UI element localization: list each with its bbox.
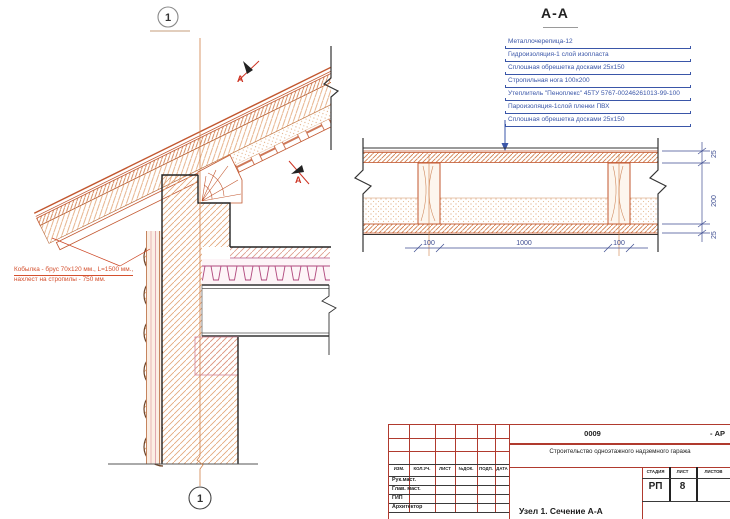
stage-label: СТАДИЯ	[642, 469, 669, 474]
floor-slab	[202, 247, 330, 285]
sheets-label: ЛИСТОВ	[696, 469, 730, 474]
row-rukmast: Рук.маст.	[392, 477, 416, 483]
doc-number: 0009	[509, 429, 676, 438]
col-list: ЛИСТ	[435, 466, 455, 471]
siding-strips	[146, 231, 162, 464]
dim-bottom: 25	[711, 231, 718, 239]
row-gip: ГИП	[392, 495, 403, 501]
section-title: А-А	[541, 5, 569, 21]
callout-item: Металлочерепица-12	[505, 36, 691, 49]
bearing-pad	[195, 337, 238, 375]
section-letter: А	[295, 175, 302, 185]
section-a-a-drawing: 25 200 25 100 1000 100	[350, 118, 730, 270]
eave-detail-drawing: 1 1 А А	[0, 0, 360, 519]
title-block: ИЗМ. КОЛ.УЧ. ЛИСТ №ДОК. ПОДП. ДАТА Рук.м…	[388, 424, 730, 519]
axis-marker-bottom-label: 1	[197, 493, 203, 505]
callout-item: Пароизоляция-1слой пленки ПВХ	[505, 101, 691, 114]
axis-marker-top-label: 1	[165, 12, 171, 24]
stage-value: РП	[642, 481, 669, 492]
project-title: Строительство одноэтажного надземного га…	[511, 448, 729, 455]
col-podp: ПОДП.	[477, 466, 495, 471]
top-sheathing	[363, 153, 658, 163]
doc-suffix: - АР	[710, 429, 725, 438]
annotation-line2: нахлест на стропилы - 750 мм.	[14, 276, 106, 283]
section-letter: А	[237, 74, 244, 84]
callout-item: Утеплитель "Пеноплекс" 45ТУ 5767-0024626…	[505, 88, 691, 101]
callout-arrow	[502, 120, 509, 151]
col-koluch: КОЛ.УЧ.	[409, 466, 435, 471]
drawing-title: Узел 1. Сечение А-А	[519, 506, 603, 516]
annotation-line1: Кобылка - брус 70х120 мм., L=1500 мм.,	[14, 266, 133, 276]
sheet-value: 8	[669, 481, 696, 492]
callout-item: Стропильная нога 100х200	[505, 75, 691, 88]
dim-top: 25	[711, 150, 718, 158]
callout-item: Сплошная обрешетка досками 25х150	[505, 62, 691, 75]
col-ndok: №ДОК.	[455, 466, 477, 471]
section-title-underline	[543, 27, 578, 28]
sheet-label: ЛИСТ	[669, 469, 696, 474]
row-arhitektor: Архитектор	[392, 504, 422, 510]
dim-span: 1000	[516, 240, 532, 247]
dim-middle: 200	[711, 195, 718, 207]
section-cut-mark-lower: А	[289, 161, 309, 185]
col-izm: ИЗМ.	[389, 466, 409, 471]
profiled-deck	[202, 261, 330, 283]
drawing-sheet: 1 1 А А Кобылка - брус 70х120 мм., L=150…	[0, 0, 730, 519]
dim-joist-left: 100	[423, 240, 435, 247]
material-callout-list: Металлочерепица-12 Гидроизоляция-1 слой …	[505, 36, 691, 127]
col-data: ДАТА	[495, 466, 509, 471]
row-glavmast: Глав. маст.	[392, 486, 421, 492]
bottom-sheathing	[363, 224, 658, 233]
callout-item: Гидроизоляция-1 слой изопласта	[505, 49, 691, 62]
kobylka-annotation: Кобылка - брус 70х120 мм., L=1500 мм., н…	[14, 266, 146, 285]
section-cut-mark-upper: А	[237, 61, 259, 84]
vertical-dimension-chain	[662, 142, 710, 242]
dim-joist-right: 100	[613, 240, 625, 247]
